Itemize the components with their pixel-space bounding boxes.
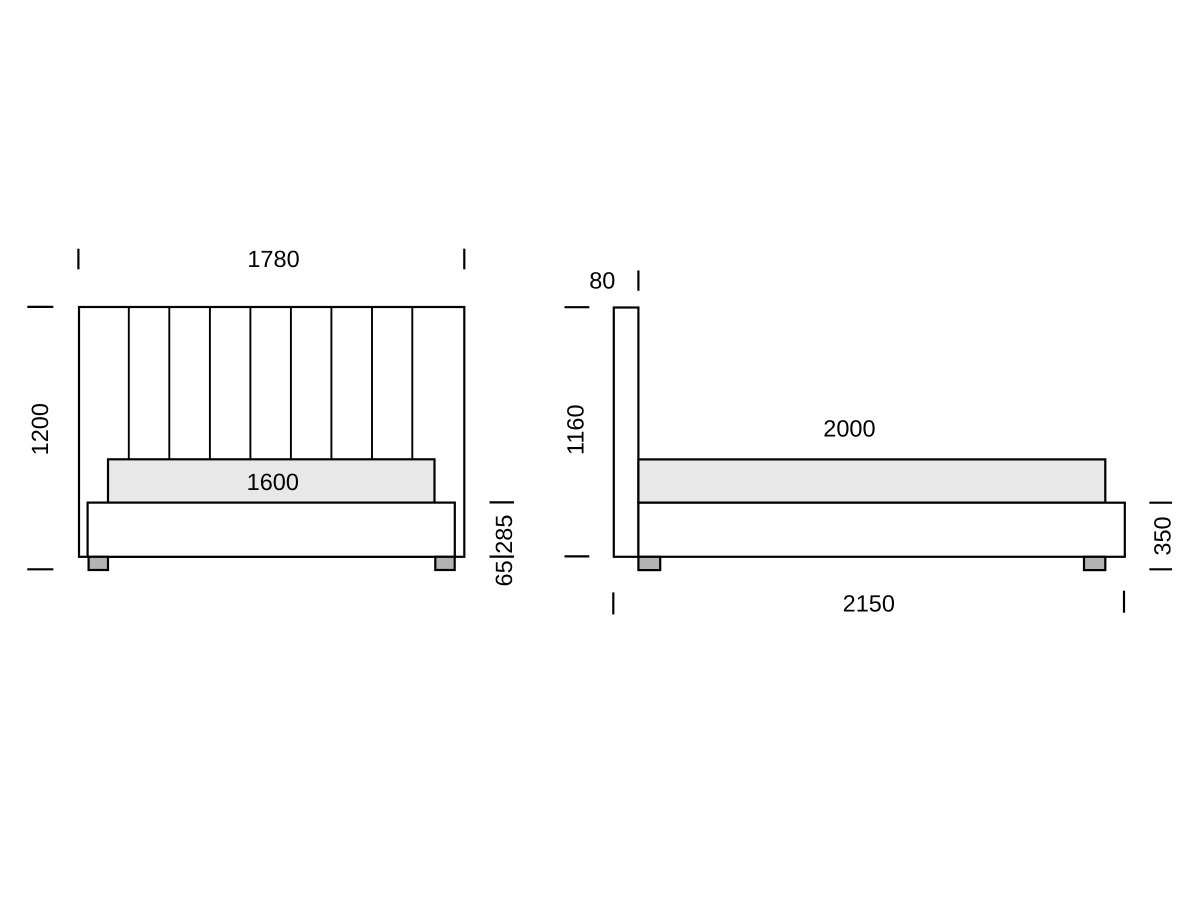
svg-text:1160: 1160 — [563, 404, 589, 455]
svg-text:2150: 2150 — [843, 590, 895, 616]
svg-text:2000: 2000 — [823, 415, 875, 441]
svg-text:350: 350 — [1150, 516, 1176, 555]
svg-text:1200: 1200 — [27, 403, 53, 455]
svg-text:80: 80 — [589, 268, 615, 294]
svg-text:285: 285 — [491, 515, 517, 554]
svg-text:1600: 1600 — [247, 469, 299, 495]
svg-text:1780: 1780 — [247, 246, 299, 272]
svg-text:65: 65 — [491, 560, 517, 586]
